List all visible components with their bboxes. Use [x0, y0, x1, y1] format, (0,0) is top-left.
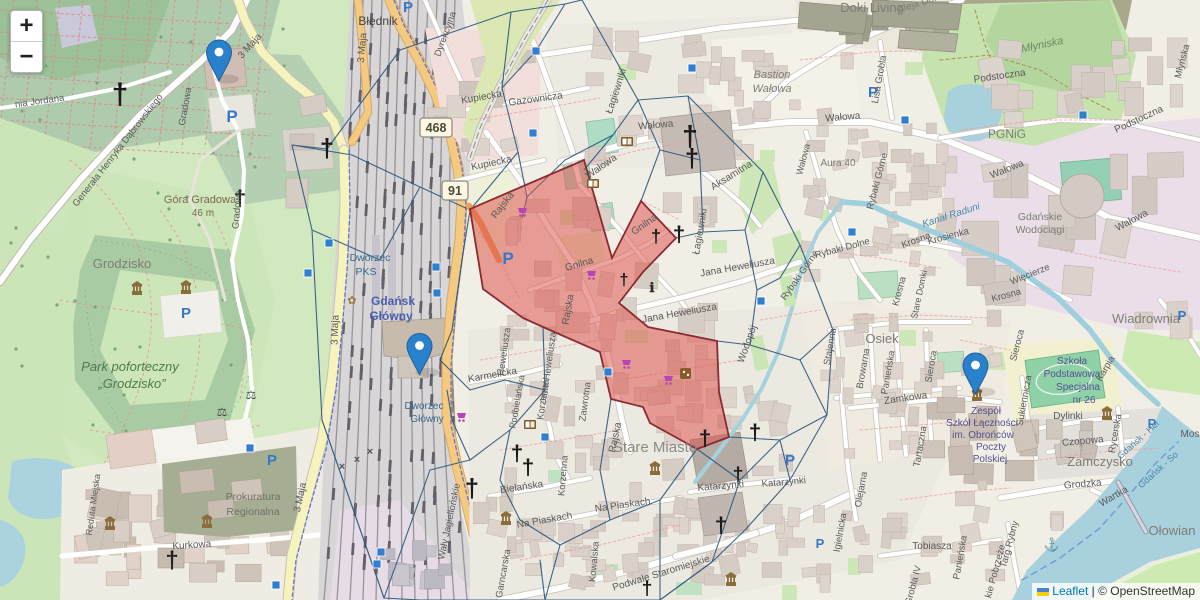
svg-text:PKS: PKS — [355, 266, 376, 278]
svg-text:†: † — [465, 475, 479, 503]
svg-text:Szkoła: Szkoła — [1057, 356, 1087, 367]
svg-text:91: 91 — [448, 184, 462, 198]
svg-text:Dworzec: Dworzec — [405, 401, 444, 412]
svg-text:Polskiej: Polskiej — [973, 454, 1007, 465]
svg-text:Specjalna: Specjalna — [1056, 382, 1100, 393]
svg-text:„Grodzisko”: „Grodzisko” — [97, 376, 166, 391]
svg-text:Wodociągi: Wodociągi — [1016, 224, 1065, 236]
svg-text:Grodzisko: Grodzisko — [93, 256, 152, 271]
svg-text:†: † — [715, 512, 728, 537]
svg-text:P: P — [403, 0, 413, 16]
svg-text:Park poforteczny: Park poforteczny — [81, 359, 180, 374]
svg-text:Doki Living: Doki Living — [840, 0, 904, 15]
svg-text:Gdańskie: Gdańskie — [1018, 211, 1063, 223]
svg-text:Wiadrownia: Wiadrownia — [1112, 311, 1181, 326]
svg-text:×: × — [367, 446, 373, 458]
svg-text:Mos: Mos — [1181, 429, 1200, 440]
svg-text:Bastion: Bastion — [754, 69, 791, 81]
svg-text:P: P — [226, 107, 237, 126]
svg-text:†: † — [619, 271, 628, 289]
svg-text:PGNiG: PGNiG — [988, 127, 1026, 141]
svg-text:†: † — [685, 145, 699, 173]
svg-text:Dylinki: Dylinki — [1053, 411, 1082, 422]
svg-text:Główny: Główny — [410, 414, 443, 425]
svg-text:⚖: ⚖ — [217, 405, 228, 419]
svg-text:Główny: Główny — [369, 309, 413, 323]
svg-text:†: † — [699, 425, 712, 450]
svg-text:†: † — [112, 78, 129, 111]
svg-text:Poczty: Poczty — [976, 442, 1006, 453]
svg-text:Tobiasza: Tobiasza — [912, 541, 952, 552]
svg-text:Wałowa: Wałowa — [753, 83, 792, 95]
svg-text:468: 468 — [426, 121, 447, 135]
svg-text:im. Obrońców: im. Obrońców — [952, 430, 1014, 441]
svg-text:†: † — [320, 135, 334, 163]
svg-text:P: P — [816, 536, 825, 551]
svg-text:†: † — [522, 454, 535, 479]
svg-text:⚓: ⚓ — [1044, 537, 1060, 552]
svg-text:nr 26: nr 26 — [1073, 395, 1096, 406]
svg-text:P: P — [502, 249, 513, 268]
svg-text:Regionalna: Regionalna — [226, 506, 279, 518]
svg-text:Gdańsk: Gdańsk — [371, 294, 415, 308]
svg-text:ℹ: ℹ — [650, 280, 655, 295]
svg-text:Prokuratura: Prokuratura — [226, 491, 281, 503]
svg-text:×: × — [354, 454, 360, 466]
svg-text:Szkół Łączności: Szkół Łączności — [946, 418, 1018, 429]
svg-text:Góra Gradowa: Góra Gradowa — [164, 194, 237, 206]
svg-text:Aura 40: Aura 40 — [820, 158, 855, 169]
svg-text:P: P — [267, 452, 277, 469]
svg-text:Osiek: Osiek — [865, 331, 899, 346]
svg-text:Błędnik: Błędnik — [358, 14, 398, 28]
svg-text:46 m: 46 m — [192, 208, 214, 219]
svg-text:P: P — [785, 452, 795, 469]
svg-text:Ołowian: Ołowian — [1149, 523, 1196, 538]
svg-text:Podstawowa: Podstawowa — [1044, 369, 1101, 380]
svg-text:⚖: ⚖ — [246, 388, 257, 402]
svg-text:†: † — [673, 221, 686, 246]
svg-text:Stare Miasto: Stare Miasto — [613, 439, 697, 456]
svg-text:†: † — [651, 226, 661, 246]
svg-text:✿: ✿ — [347, 295, 356, 307]
svg-text:P: P — [181, 305, 191, 322]
svg-text:Dworzec: Dworzec — [350, 252, 391, 264]
svg-text:3 Maja: 3 Maja — [329, 314, 341, 345]
svg-text:†: † — [749, 419, 762, 444]
svg-text:Zespół: Zespół — [971, 406, 1002, 417]
